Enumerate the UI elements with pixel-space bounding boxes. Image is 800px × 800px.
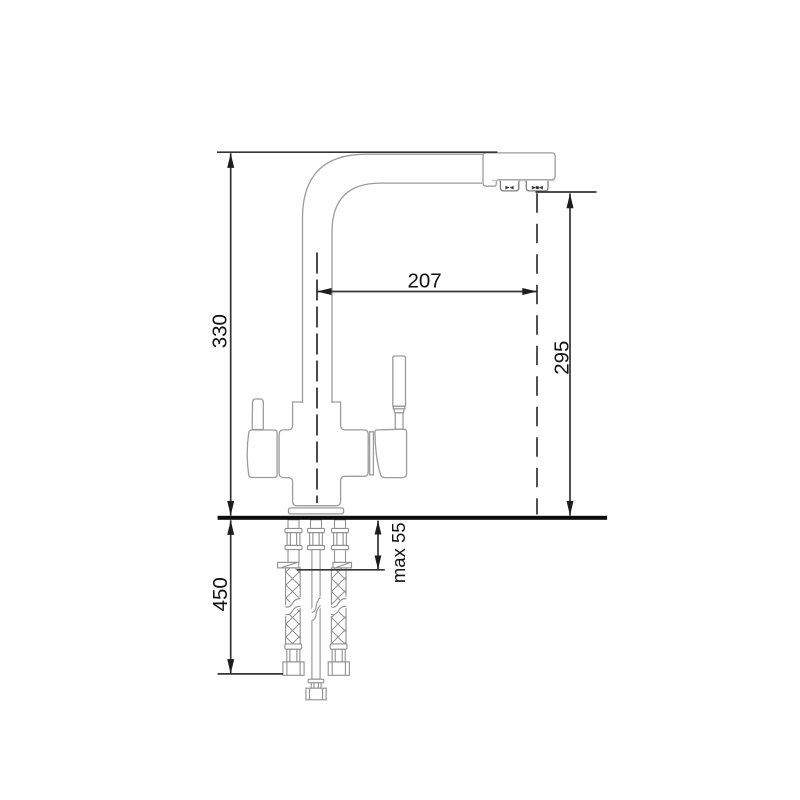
svg-text:450: 450 [209, 577, 232, 611]
svg-text:207: 207 [407, 270, 441, 293]
svg-text:295: 295 [551, 341, 574, 375]
svg-text:330: 330 [209, 314, 232, 348]
svg-text:max 55: max 55 [388, 522, 409, 583]
